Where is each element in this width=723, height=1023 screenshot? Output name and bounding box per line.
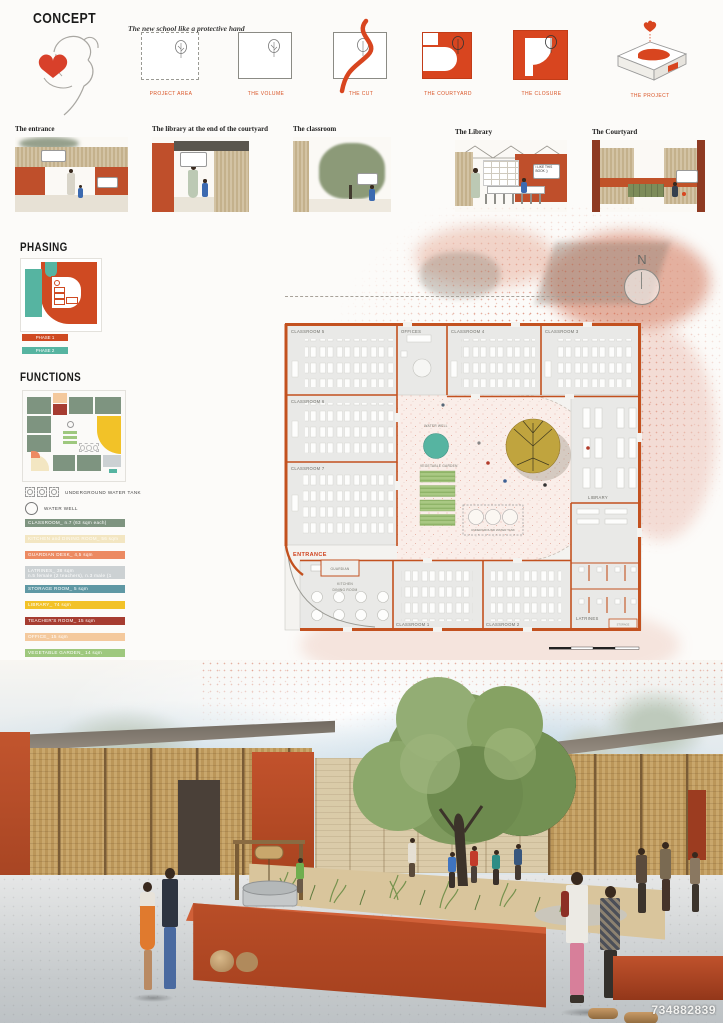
lintel-beam (15, 147, 128, 167)
fn-office (53, 393, 67, 403)
fn-classroom (27, 416, 51, 433)
courtyard-rendering: 734882839 (0, 660, 723, 1023)
red-wall-left (15, 167, 45, 197)
legend-guardian: GUARDIAN DESK_ 4,5 sqm (25, 551, 125, 559)
courtyard-illustration (592, 140, 705, 212)
guardian-label: GUARDIAN (330, 567, 349, 571)
speech-bubble (357, 173, 378, 185)
ground (15, 195, 128, 212)
tree-sketch-icon (174, 39, 188, 61)
kitchen-label: KITCHEN (337, 582, 353, 586)
cut-icon (333, 32, 387, 79)
red-pillar-right (697, 140, 705, 212)
north-arrow: N (612, 252, 672, 305)
fn-classroom (27, 435, 51, 452)
speech-bubble-text: I LIKE THIS BOOK ;) (536, 165, 553, 173)
right-building-red-door (688, 790, 706, 860)
phase2-notch (45, 262, 57, 277)
tank-symbol: UNDERGROUND WATER TANK (25, 487, 141, 497)
concept-title: CONCEPT (33, 10, 96, 27)
phasing-title: PHASING (20, 240, 68, 254)
tank-mark (66, 297, 78, 304)
legend-teachers-room: TEACHER'S ROOM_ 15 sqm (25, 617, 125, 625)
board-id-number: 734882839 (651, 1003, 716, 1017)
fn-guardian (31, 451, 40, 458)
speech-bubble (180, 152, 207, 167)
red-wall-left (152, 143, 174, 212)
person-child-playing (470, 846, 478, 883)
classroom5-label: CLASSROOM 5 (291, 329, 325, 334)
clay-pot (210, 950, 234, 972)
person-right-group (690, 852, 700, 912)
entrance-label: ENTRANCE (293, 552, 327, 558)
project-axon-icon (608, 20, 692, 86)
red-ball (682, 192, 686, 196)
functions-diagram (22, 390, 126, 482)
red-bench-wall (613, 956, 723, 1000)
figure-adult (67, 169, 75, 195)
concept-step-the-courtyard: THE COURTYARD (422, 32, 474, 97)
vignette-label-classroom: The classroom (293, 125, 336, 133)
speech-bubble: I LIKE THIS BOOK ;) (533, 164, 560, 179)
fn-garden (63, 441, 77, 444)
fn-library (97, 416, 121, 454)
log-seat (588, 1008, 618, 1019)
north-label: N (612, 252, 672, 267)
fn-teachers-room (53, 404, 67, 415)
floor-plan: WATER WELL VEGETABLE GARDEN UNDERGROUND … (283, 313, 643, 665)
clay-pot (236, 952, 258, 972)
north-compass-icon (624, 269, 660, 305)
ground (174, 197, 214, 212)
figure-adult (188, 165, 198, 198)
vignette-label-entrance: The entrance (15, 125, 54, 133)
fn-tank (79, 443, 99, 452)
scale-bar (549, 647, 639, 649)
latrines-label: LATRINES (576, 616, 599, 621)
person-right-group (636, 848, 647, 913)
speech-bubble (41, 150, 66, 162)
fn-classroom (95, 397, 121, 414)
legend-kitchen: KITCHEN and DINING ROOM_ 56 sqm (25, 535, 125, 543)
tree-sketch-icon (544, 34, 558, 56)
figure-child (202, 179, 208, 197)
chairs (485, 194, 545, 204)
shadow (132, 994, 174, 1002)
storage-label: STORAGE (617, 623, 630, 627)
phase2-legend: PHASE 2 (22, 347, 68, 354)
person-boy-blue-jeans (162, 868, 178, 989)
speech-bubble (97, 177, 118, 188)
fn-classroom (27, 397, 51, 414)
legend-latrines-line2: n.5 female (2 teachers), n.3 male (1 tea… (28, 573, 112, 584)
closure-icon (513, 30, 568, 80)
site-boundary-line (285, 296, 635, 297)
vegetable-garden-label: VEGETABLE GARDEN (420, 464, 458, 468)
fn-latrines (103, 455, 121, 467)
garden-mark (54, 299, 65, 305)
wall-left (293, 141, 309, 212)
garden-mat (628, 184, 664, 197)
phase1-legend: PHASE 1 (22, 334, 68, 341)
person-child-green (296, 858, 304, 893)
legend-latrines: LATRINES_ 38 sqm n.5 female (2 teachers)… (25, 566, 125, 579)
entrance-illustration (15, 137, 128, 212)
figure-child (672, 182, 678, 197)
presentation-board: CONCEPT The new school like a protective… (0, 0, 723, 1023)
person-child-playing (514, 844, 522, 880)
fn-classroom (69, 397, 93, 414)
red-pillar-left (592, 140, 600, 212)
step-label: THE COURTYARD (422, 91, 474, 97)
classroom-illustration (293, 137, 391, 212)
closure-cut-leg (525, 65, 533, 76)
step-label: THE PROJECT (608, 93, 692, 99)
step-label: PROJECT AREA (141, 91, 201, 97)
vignette-label-library: The Library (455, 128, 492, 136)
dark-header (174, 141, 249, 151)
classroom3-label: CLASSROOM 3 (545, 329, 579, 334)
fn-storage (109, 469, 117, 473)
person-child-playing (492, 850, 500, 885)
hand-heart-icon (26, 30, 106, 116)
phasing-diagram (20, 258, 102, 332)
offices-label: OFFICES (401, 329, 421, 334)
concept-step-project-area: PROJECT AREA (141, 32, 201, 97)
fn-classroom (53, 455, 75, 471)
left-building-opening (178, 780, 220, 880)
classroom7-label: CLASSROOM 7 (291, 466, 325, 471)
figure-child (369, 185, 375, 201)
red-backpack (561, 891, 569, 917)
step-label: THE CLOSURE (513, 91, 570, 97)
fn-garden (63, 431, 77, 434)
library-illustration: I LIKE THIS BOOK ;) (455, 140, 567, 212)
well-symbol: WATER WELL (25, 502, 78, 515)
tree-sketch-icon (267, 38, 281, 60)
step-label: THE VOLUME (238, 91, 294, 97)
legend-vegetable-garden: VEGETABLE GARDEN_ 14 sqm (25, 649, 125, 657)
colonnade-right (214, 151, 249, 212)
well-symbol-label: WATER WELL (44, 506, 78, 511)
water-well (424, 434, 449, 459)
project-area-icon (141, 32, 199, 80)
figure-child (521, 178, 527, 193)
legend-office: OFFICE_ 15 sqm (25, 633, 125, 641)
legend-latrines-line1: LATRINES_ 38 sqm (28, 568, 74, 573)
big-tree (340, 674, 590, 889)
tree-sketch-icon (451, 35, 465, 57)
fn-well (67, 421, 74, 428)
classroom1-label: CLASSROOM 1 (396, 622, 430, 627)
volume-icon (238, 32, 292, 79)
classroom2-label: CLASSROOM 2 (486, 622, 520, 627)
figure-child (78, 185, 83, 198)
bookshelf (483, 160, 519, 186)
person-right-group (660, 842, 671, 911)
figure-adult (471, 168, 480, 198)
red-cut-curve (328, 21, 394, 93)
fn-garden (63, 436, 77, 439)
tree-canopy (319, 143, 385, 199)
functions-title: FUNCTIONS (20, 370, 81, 384)
legend-library: LIBRARY_ 74 sqm (25, 601, 125, 609)
concept-step-the-cut: THE CUT (333, 32, 389, 97)
dining-room-label: DINING ROOM (333, 588, 358, 592)
concept-step-the-project: THE PROJECT (608, 20, 692, 99)
vignette-label-library-courtyard: The library at the end of the courtyard (152, 125, 268, 133)
reading-table (487, 186, 545, 194)
library-end-illustration (152, 137, 249, 212)
well-mark (54, 280, 60, 286)
classroom4-label: CLASSROOM 4 (451, 329, 485, 334)
legend-storage: STORAGE ROOM_ 5 sqm (25, 585, 125, 593)
person-girl-orange-dress (140, 882, 155, 990)
legend-classroom: CLASSROOM_ n.7 (63 sqm each) (25, 519, 125, 527)
person-child-playing (448, 852, 456, 888)
vignette-label-courtyard: The Courtyard (592, 128, 637, 136)
person-child-white-hoodie (566, 872, 588, 1003)
speech-bubble (676, 170, 698, 183)
person-adult-distant (408, 838, 416, 877)
phase2-area (25, 269, 42, 317)
fn-classroom (77, 455, 101, 471)
library-label: LIBRARY (588, 495, 608, 500)
courtyard-icon (422, 32, 472, 79)
concept-step-the-volume: THE VOLUME (238, 32, 294, 97)
courtyard-cut-top (423, 33, 438, 45)
classroom6-label: CLASSROOM 6 (291, 399, 325, 404)
water-well-label: WATER WELL (424, 424, 447, 428)
water-tank-label: UNDERGROUND WATER TANK (471, 528, 515, 532)
concept-step-the-closure: THE CLOSURE (513, 30, 570, 97)
tank-symbol-label: UNDERGROUND WATER TANK (65, 490, 141, 495)
